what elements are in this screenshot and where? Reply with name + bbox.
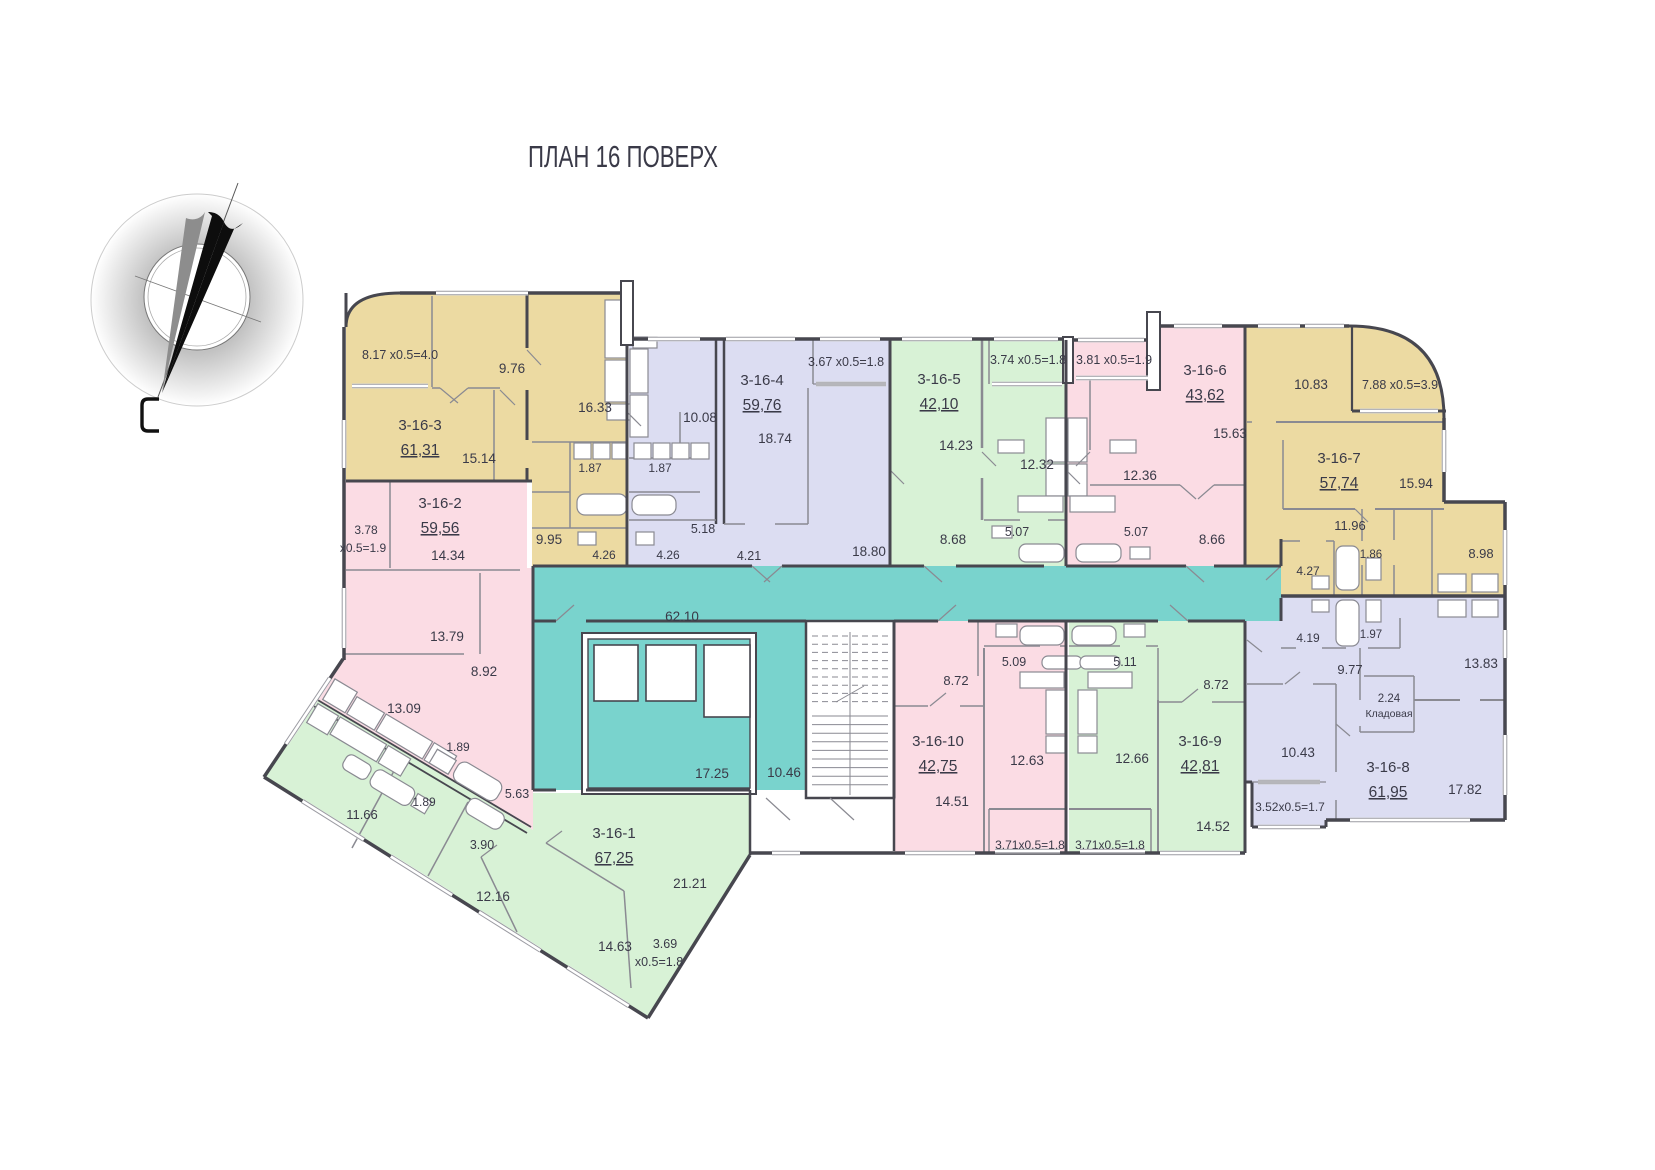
svg-text:1.89: 1.89 <box>446 740 470 754</box>
svg-text:42,81: 42,81 <box>1181 758 1220 775</box>
svg-text:12.63: 12.63 <box>1010 753 1044 768</box>
svg-text:ПЛАН 16 ПОВЕРХ: ПЛАН 16 ПОВЕРХ <box>528 139 718 174</box>
svg-text:18.74: 18.74 <box>758 431 792 446</box>
svg-text:59,76: 59,76 <box>743 397 782 414</box>
svg-text:11.96: 11.96 <box>1334 518 1366 533</box>
svg-text:1.87: 1.87 <box>648 461 672 475</box>
svg-text:62.10: 62.10 <box>665 609 699 624</box>
svg-text:9.77: 9.77 <box>1337 662 1362 677</box>
svg-text:13.09: 13.09 <box>387 701 421 716</box>
svg-text:57,74: 57,74 <box>1320 475 1359 492</box>
svg-text:14.34: 14.34 <box>431 548 465 563</box>
svg-text:Кладовая: Кладовая <box>1365 708 1412 720</box>
svg-text:17.82: 17.82 <box>1448 782 1482 797</box>
svg-text:8.92: 8.92 <box>471 664 497 679</box>
svg-text:14.52: 14.52 <box>1196 819 1230 834</box>
svg-text:3.69: 3.69 <box>653 937 677 951</box>
svg-text:9.76: 9.76 <box>499 361 525 376</box>
svg-text:8.72: 8.72 <box>1203 677 1228 692</box>
svg-text:5.09: 5.09 <box>1002 655 1026 669</box>
svg-text:14.51: 14.51 <box>935 794 969 809</box>
svg-text:3-16-2: 3-16-2 <box>418 495 461 512</box>
svg-text:13.79: 13.79 <box>430 629 464 644</box>
svg-text:1.97: 1.97 <box>1360 629 1382 641</box>
svg-text:42,75: 42,75 <box>919 758 958 775</box>
svg-text:43,62: 43,62 <box>1186 387 1225 404</box>
svg-text:8.98: 8.98 <box>1468 546 1493 561</box>
svg-text:8.68: 8.68 <box>940 532 966 547</box>
svg-text:18.80: 18.80 <box>852 544 886 559</box>
svg-text:4.26: 4.26 <box>592 548 616 562</box>
svg-text:5.11: 5.11 <box>1113 655 1136 669</box>
svg-text:8.66: 8.66 <box>1199 532 1225 547</box>
svg-text:15.94: 15.94 <box>1399 476 1433 491</box>
svg-text:42,10: 42,10 <box>920 396 959 413</box>
svg-text:3.90: 3.90 <box>470 838 494 852</box>
svg-text:4.19: 4.19 <box>1296 631 1320 645</box>
svg-text:67,25: 67,25 <box>595 850 634 867</box>
svg-text:14.63: 14.63 <box>598 939 632 954</box>
svg-text:10.46: 10.46 <box>767 765 801 780</box>
svg-text:9.95: 9.95 <box>536 532 562 547</box>
svg-text:3-16-1: 3-16-1 <box>592 825 635 842</box>
svg-text:15.14: 15.14 <box>462 451 496 466</box>
svg-text:3.81 x0.5=1.9: 3.81 x0.5=1.9 <box>1076 353 1152 367</box>
svg-text:3.71x0.5=1.8: 3.71x0.5=1.8 <box>1075 838 1145 852</box>
svg-text:1.86: 1.86 <box>1360 549 1382 561</box>
svg-text:1.87: 1.87 <box>578 461 602 475</box>
svg-text:3-16-7: 3-16-7 <box>1317 450 1360 467</box>
svg-text:2.24: 2.24 <box>1378 693 1401 705</box>
svg-text:4.27: 4.27 <box>1296 564 1320 578</box>
svg-text:16.33: 16.33 <box>578 400 612 415</box>
svg-text:11.66: 11.66 <box>346 807 378 822</box>
svg-text:3.67 x0.5=1.8: 3.67 x0.5=1.8 <box>808 355 884 369</box>
svg-text:17.25: 17.25 <box>695 766 729 781</box>
svg-text:5.07: 5.07 <box>1124 525 1148 539</box>
svg-text:13.83: 13.83 <box>1464 656 1498 671</box>
svg-text:59,56: 59,56 <box>421 520 460 537</box>
svg-text:3.52x0.5=1.7: 3.52x0.5=1.7 <box>1255 800 1325 814</box>
svg-text:5.18: 5.18 <box>691 522 715 536</box>
svg-text:4.21: 4.21 <box>737 549 761 563</box>
svg-text:x0.5=1.8: x0.5=1.8 <box>635 955 683 969</box>
svg-text:3-16-8: 3-16-8 <box>1366 759 1409 776</box>
svg-text:3-16-9: 3-16-9 <box>1178 733 1221 750</box>
svg-text:12.36: 12.36 <box>1123 468 1157 483</box>
svg-text:10.08: 10.08 <box>683 410 717 425</box>
svg-text:8.17 x0.5=4.0: 8.17 x0.5=4.0 <box>362 348 438 362</box>
svg-text:7.88 x0.5=3.9: 7.88 x0.5=3.9 <box>1362 378 1438 392</box>
svg-text:3-16-3: 3-16-3 <box>398 417 441 434</box>
svg-text:4.26: 4.26 <box>656 548 680 562</box>
svg-text:1.89: 1.89 <box>412 795 436 809</box>
svg-text:3-16-5: 3-16-5 <box>917 371 960 388</box>
svg-text:3.78: 3.78 <box>354 523 378 537</box>
svg-text:61,31: 61,31 <box>401 442 440 459</box>
svg-text:10.43: 10.43 <box>1281 745 1315 760</box>
svg-text:21.21: 21.21 <box>673 876 707 891</box>
svg-text:3-16-4: 3-16-4 <box>740 372 783 389</box>
svg-text:12.66: 12.66 <box>1115 751 1149 766</box>
svg-text:8.72: 8.72 <box>943 673 968 688</box>
svg-text:12.32: 12.32 <box>1020 457 1054 472</box>
svg-text:5.07: 5.07 <box>1005 525 1029 539</box>
svg-text:3-16-10: 3-16-10 <box>912 733 964 750</box>
svg-text:x0.5=1.9: x0.5=1.9 <box>340 541 387 555</box>
svg-text:12.16: 12.16 <box>476 889 510 904</box>
svg-text:5.63: 5.63 <box>505 787 529 801</box>
svg-text:14.23: 14.23 <box>939 438 973 453</box>
svg-text:3-16-6: 3-16-6 <box>1183 362 1226 379</box>
svg-text:61,95: 61,95 <box>1369 784 1408 801</box>
svg-text:15.63: 15.63 <box>1213 426 1247 441</box>
svg-text:3.71x0.5=1.8: 3.71x0.5=1.8 <box>995 838 1065 852</box>
svg-text:3.74 x0.5=1.8: 3.74 x0.5=1.8 <box>990 353 1066 367</box>
svg-text:10.83: 10.83 <box>1294 377 1328 392</box>
